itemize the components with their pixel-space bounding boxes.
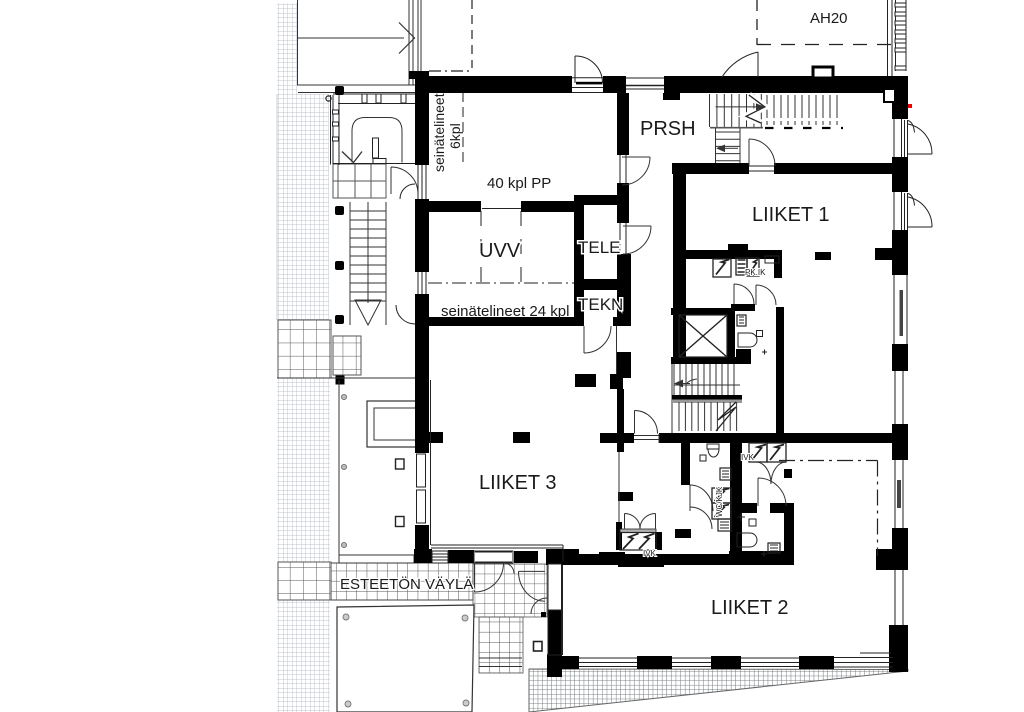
- svg-text:seinätelineet 24 kpl: seinätelineet 24 kpl: [441, 303, 569, 320]
- svg-text:seinätelineet: seinätelineet: [431, 93, 447, 172]
- svg-text:TELE: TELE: [578, 238, 621, 257]
- svg-text:PRSH: PRSH: [640, 118, 696, 140]
- svg-text:WC/KJK: WC/KJK: [715, 486, 724, 517]
- svg-text:PK.IK: PK.IK: [745, 268, 766, 277]
- svg-text:ESTEETÖN VÄYLÄ: ESTEETÖN VÄYLÄ: [340, 575, 473, 593]
- svg-text:LIIKET 2: LIIKET 2: [711, 597, 788, 619]
- svg-text:IVK: IVK: [741, 453, 755, 462]
- svg-text:LIIKET 1: LIIKET 1: [752, 204, 829, 226]
- svg-text:LIIKET 3: LIIKET 3: [479, 472, 556, 494]
- svg-text:IVK: IVK: [643, 549, 657, 558]
- svg-text:UVV: UVV: [479, 240, 521, 262]
- svg-text:TEKN: TEKN: [578, 295, 623, 314]
- svg-text:6kpl: 6kpl: [447, 123, 463, 149]
- svg-text:AH20: AH20: [810, 10, 848, 27]
- svg-text:40 kpl PP: 40 kpl PP: [487, 175, 551, 192]
